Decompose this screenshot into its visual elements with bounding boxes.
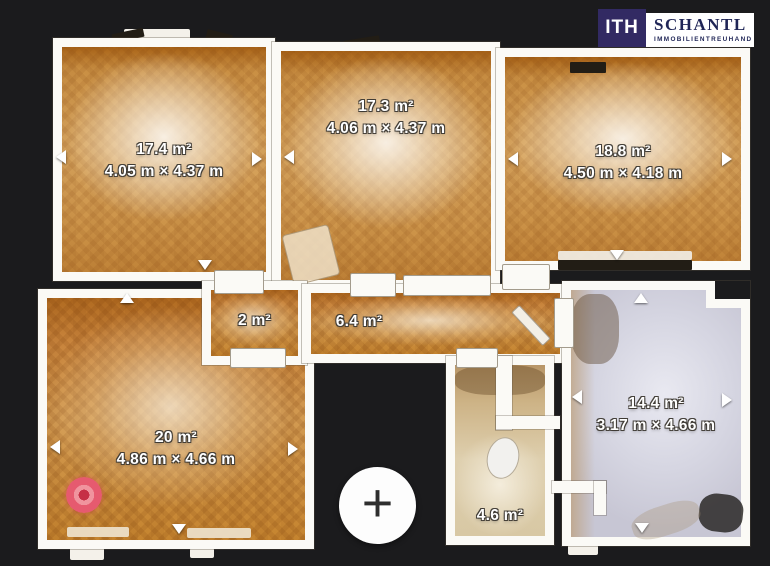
room-bedroom-2: 17.3 m² 4.06 m × 4.37 m [272,42,500,289]
nav-arrow-down-icon[interactable] [172,524,186,534]
room-area: 18.8 m² [505,141,741,163]
room-dims: 4.86 m × 4.66 m [47,449,305,471]
door-opening [403,275,491,296]
brand-logo-text: SCHANTL IMMOBILIENTREUHAND [646,13,754,47]
brand-tagline: IMMOBILIENTREUHAND [654,36,746,43]
toilet [482,434,523,482]
room-dims: 4.06 m × 4.37 m [281,118,491,140]
brand-logo: ITH SCHANTL IMMOBILIENTREUHAND [598,9,754,47]
door-opening [350,273,396,297]
room-label: 14.4 m² 3.17 m × 4.66 m [571,393,741,437]
room-label: 17.3 m² 4.06 m × 4.37 m [281,96,491,140]
brand-name: SCHANTL [654,16,746,35]
room-dims: 3.17 m × 4.66 m [571,415,741,437]
nav-arrow-right-icon[interactable] [252,152,262,166]
room-label: 20 m² 4.86 m × 4.66 m [47,427,305,471]
room-area: 6.4 m² [311,311,407,333]
scan-artifact [571,294,619,364]
radiator [570,62,606,73]
room-bedroom-1: 17.4 m² 4.05 m × 4.37 m [53,38,275,281]
nav-arrow-down-icon[interactable] [635,523,649,533]
ith-logo-mark: ITH [598,9,646,47]
nav-arrow-down-icon[interactable] [198,260,212,270]
room-bedroom-3: 18.8 m² 4.50 m × 4.18 m [496,48,750,270]
door-opening [214,270,264,294]
door-opening [456,348,498,368]
window-sill [558,251,692,260]
room-area: 2 m² [211,310,298,332]
room-label: 4.6 m² [455,505,545,527]
furniture-dark [697,492,745,534]
room-label: 2 m² [211,310,298,332]
furniture-cabinet [281,224,340,286]
room-kitchen: 14.4 m² 3.17 m × 4.66 m [562,281,750,546]
room-area: 17.4 m² [62,139,266,161]
room-label: 18.8 m² 4.50 m × 4.18 m [505,141,741,185]
french-door [558,260,692,270]
door-opening [502,264,550,290]
nav-arrow-down-icon[interactable] [610,250,624,260]
window-sill [187,528,251,538]
nav-arrow-left-icon[interactable] [284,150,294,164]
wall-step [706,281,750,308]
nav-arrow-right-icon[interactable] [722,152,732,166]
window-stub [190,548,214,558]
nav-arrow-left-icon[interactable] [56,150,66,164]
nav-arrow-up-icon[interactable] [120,293,134,303]
room-label: 17.4 m² 4.05 m × 4.37 m [62,139,266,183]
plus-icon: + [362,476,394,530]
nav-arrow-left-icon[interactable] [50,440,60,454]
room-label: 6.4 m² [311,311,407,333]
scan-artifact [628,495,704,545]
nav-arrow-left-icon[interactable] [572,390,582,404]
nav-arrow-up-icon[interactable] [634,293,648,303]
room-area: 14.4 m² [571,393,741,415]
add-button[interactable]: + [339,467,416,544]
camera-position-marker[interactable] [66,477,102,513]
room-area: 4.6 m² [455,505,545,527]
room-dims: 4.05 m × 4.37 m [62,161,266,183]
wall-segment [496,416,560,429]
floorplan-viewer: 20 m² 4.86 m × 4.66 m 17.4 m² 4.05 m × 4… [0,0,770,566]
wall-segment [594,481,606,515]
room-dims: 4.50 m × 4.18 m [505,163,741,185]
room-area: 20 m² [47,427,305,449]
door-opening [230,348,286,368]
window-sill [67,527,129,537]
nav-arrow-left-icon[interactable] [508,152,518,166]
room-area: 17.3 m² [281,96,491,118]
nav-arrow-right-icon[interactable] [288,442,298,456]
nav-arrow-right-icon[interactable] [722,393,732,407]
door-opening [554,298,574,348]
